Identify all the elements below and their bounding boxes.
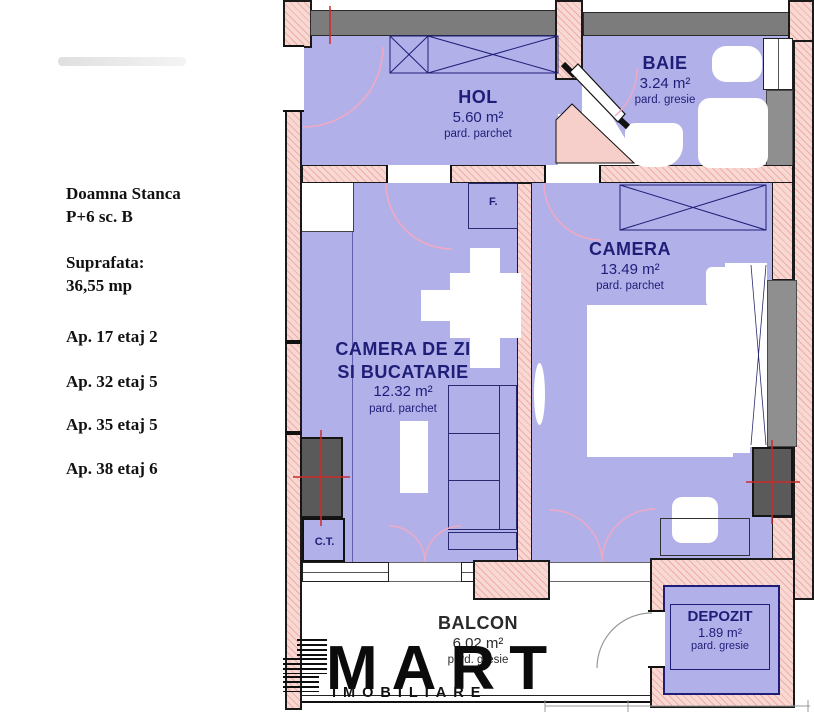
wall-joint-tick: [285, 340, 302, 344]
label-depozit: DEPOZIT 1.89 m² pard. gresie: [670, 604, 770, 670]
sink: [625, 123, 683, 167]
room-area: 1.89 m²: [671, 625, 769, 640]
wall-top-gray-right: [583, 12, 790, 36]
wall-pillar-balcony: [473, 560, 550, 600]
bed: [587, 305, 733, 457]
pillow: [706, 267, 748, 307]
shaft-right: [752, 447, 793, 517]
room-name: SI BUCATARIE: [323, 361, 483, 384]
apartment-line: Ap. 17 etaj 2: [66, 327, 158, 347]
address-line2: P+6 sc. B: [66, 207, 133, 227]
room-name: HOL: [398, 86, 558, 109]
room-area: 5.60 m²: [398, 109, 558, 128]
room-floor: pard. parchet: [323, 402, 483, 416]
entrance-door-opening: [283, 45, 304, 112]
room-area: 3.24 m²: [600, 75, 730, 94]
logo-building-icon: [297, 639, 327, 656]
room-floor: pard. parchet: [398, 127, 558, 141]
room-area: 12.32 m²: [323, 383, 483, 402]
room-floor: pard. parchet: [560, 279, 700, 293]
wall-gray-camera-right: [767, 280, 797, 447]
address-line1: Doamna Stanca: [66, 184, 181, 204]
apartment-line: Ap. 38 etaj 6: [66, 459, 158, 479]
camera-balcony-door-opening: [550, 562, 655, 582]
chair-left: [421, 290, 452, 321]
room-name: BAIE: [600, 52, 730, 75]
chair-top: [470, 248, 500, 276]
surface-value: 36,55 mp: [66, 276, 132, 296]
radiator: [534, 363, 545, 425]
room-floor: pard. gresie: [671, 640, 769, 652]
sofa-back-line: [499, 386, 500, 529]
label-camera: CAMERA 13.49 m² pard. parchet: [560, 238, 700, 294]
living-balcony-door-opening: [389, 562, 461, 582]
logo-tagline-text: IMOBILIARE: [332, 686, 487, 701]
wall-pillar-hol-baie: [555, 0, 583, 80]
logo-building-icon: [283, 676, 319, 692]
dining-table: [450, 273, 521, 338]
curtain-strip: [750, 263, 767, 447]
surface-label: Suprafata:: [66, 253, 144, 273]
wall-right-upper: [772, 172, 793, 280]
door-opening-living: [386, 165, 452, 183]
room-name: BALCON: [398, 612, 558, 635]
kitchen-counter: [302, 183, 354, 232]
label-ct: C.T.: [308, 536, 341, 548]
depozit-door-opening: [648, 610, 665, 668]
wall-gray-baie-right: [766, 90, 793, 172]
wall-top-left-corner: [283, 0, 312, 48]
room-floor: pard. gresie: [600, 93, 730, 107]
wall-top-gray-left: [310, 10, 558, 36]
room-area: 13.49 m²: [560, 261, 700, 280]
floorplan-page: { "info_panel": { "address_line1": "Doam…: [0, 0, 814, 720]
sofa-cushion-line: [449, 480, 500, 481]
door-opening-camera: [544, 165, 601, 183]
logo-building-icon: [283, 658, 327, 674]
apartment-line: Ap. 35 etaj 5: [66, 415, 158, 435]
wall-living-camera: [517, 183, 532, 562]
wall-joint-tick: [285, 431, 302, 435]
label-hol: HOL 5.60 m² pard. parchet: [398, 86, 558, 142]
label-baie: BAIE 3.24 m² pard. gresie: [600, 52, 730, 108]
room-name: CAMERA: [560, 238, 700, 261]
baie-window: [763, 38, 793, 90]
scan-artifact: [58, 57, 186, 66]
label-f: F.: [489, 196, 498, 208]
depozit-door-arc: [597, 613, 652, 668]
apartment-line: Ap. 32 etaj 5: [66, 372, 158, 392]
shaft-left: [300, 437, 343, 518]
label-camera-de-zi: CAMERA DE ZI SI BUCATARIE 12.32 m² pard.…: [323, 338, 483, 416]
room-name: DEPOZIT: [671, 608, 769, 625]
dresser: [660, 518, 750, 556]
shower: [698, 98, 768, 168]
sofa-footrest: [448, 532, 517, 550]
cabinet: [400, 421, 428, 493]
sofa-cushion-line: [449, 433, 500, 434]
room-name: CAMERA DE ZI: [323, 338, 483, 361]
living-window-left: [302, 562, 389, 582]
hol-baie-door-approach: [556, 82, 582, 112]
